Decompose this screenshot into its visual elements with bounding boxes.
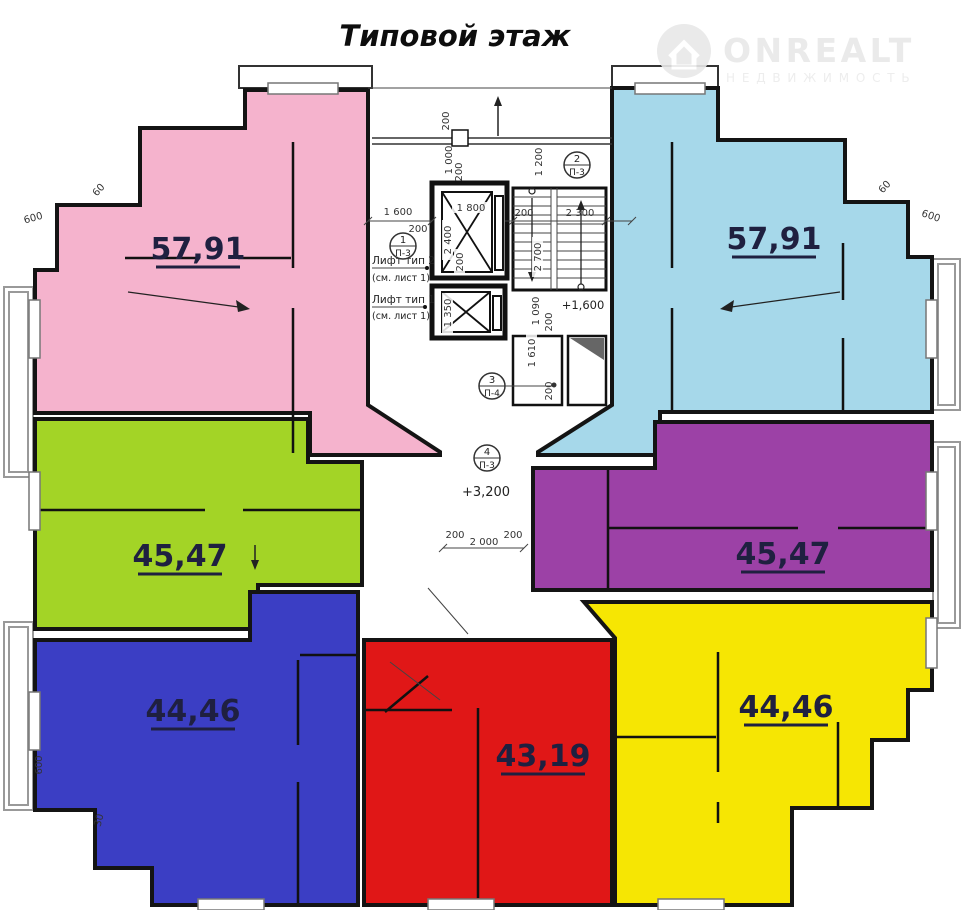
dim-label: 1 600 — [384, 207, 413, 218]
dim-label: 200 — [408, 224, 427, 235]
dim-label: 2 300 — [566, 208, 595, 219]
window-green-left — [29, 472, 40, 530]
area-label-blue: 57,91 — [727, 222, 822, 257]
window-pink-top — [268, 83, 338, 94]
lift2-note: (см. лист 1) — [372, 273, 430, 284]
marker-1: 1 П-3 — [390, 233, 416, 259]
balcony-right-mid-inner — [938, 447, 955, 623]
dim-label: 200 — [514, 208, 533, 219]
dim-label: 200 — [544, 312, 555, 331]
dim-label: 600 — [23, 211, 44, 227]
window-pink-left — [29, 300, 40, 358]
dim-label: 60 — [877, 179, 894, 196]
dim-label: 200 — [454, 162, 465, 181]
marker-3: 3 П-4 — [479, 373, 505, 399]
dim-label: 1 610 — [527, 339, 538, 368]
elevator2-counterweight — [495, 196, 503, 270]
area-label-red: 43,19 — [496, 739, 591, 774]
marker-code: П-4 — [484, 389, 500, 399]
floor-plan-page: 200 1 000 200 1 200 1 600 200 1 800 2 40… — [0, 0, 966, 910]
marker-2: 2 П-3 — [564, 152, 590, 178]
dim-label: 200 — [445, 530, 464, 541]
floor-plan-drawing: 200 1 000 200 1 200 1 600 200 1 800 2 40… — [0, 0, 966, 910]
window-darkblue-bottom — [198, 899, 264, 910]
dim-label: 600 — [920, 208, 942, 224]
dim-label: 2 400 — [443, 226, 454, 255]
dim-label: 60 — [91, 182, 108, 199]
balcony-right-upper-inner — [938, 264, 955, 405]
entry-porch-lines — [372, 138, 612, 144]
marker-number: 4 — [484, 447, 490, 458]
dim-label: 1 200 — [534, 148, 545, 177]
watermark-circle — [657, 24, 711, 78]
watermark-tagline: НЕДВИЖИМОСТЬ — [726, 71, 916, 85]
dim-label: 200 — [455, 252, 466, 271]
window-purple-right — [926, 472, 937, 530]
dim-label: 200 — [503, 530, 522, 541]
dim-label: 1 350 — [443, 299, 454, 328]
area-label-pink: 57,91 — [151, 232, 246, 267]
window-darkblue-left — [29, 692, 40, 750]
balcony-left-lower-inner — [9, 627, 28, 805]
marker-code: П-3 — [569, 168, 585, 178]
marker-3-dot — [552, 383, 557, 388]
dim-label: 2 700 — [533, 243, 544, 272]
area-label-purple: 45,47 — [736, 537, 831, 572]
marker-number: 3 — [489, 375, 495, 386]
dim-label: 1 800 — [457, 203, 486, 214]
lift1-label: Лифт тип 1 — [372, 294, 435, 306]
stairwell — [513, 188, 606, 290]
lift1-note: (см. лист 1) — [372, 311, 430, 322]
window-blue-right — [926, 300, 937, 358]
level-floor: +3,200 — [462, 485, 510, 500]
level-stairs: +1,600 — [562, 298, 605, 312]
window-yellow-right — [926, 618, 937, 668]
dim-label: 2 000 — [470, 537, 499, 548]
window-yellow-bottom — [658, 899, 724, 910]
apartment-darkblue-bottom-left — [35, 592, 358, 905]
area-label-darkblue: 44,46 — [146, 694, 241, 729]
dim-label: 1 090 — [531, 297, 542, 326]
balcony-left-upper-inner — [9, 292, 28, 472]
marker-code: П-3 — [395, 249, 411, 259]
elevator-labels: Лифт тип 2 (см. лист 1) Лифт тип 1 (см. … — [372, 255, 435, 322]
marker-4: 4 П-3 — [474, 445, 500, 471]
watermark-brand: ONREALT — [723, 31, 915, 70]
lift2-leader-dot — [425, 266, 429, 270]
window-red-bottom — [428, 899, 494, 910]
lift1-leader-dot — [423, 305, 427, 309]
entry-post — [452, 130, 468, 146]
area-label-green: 45,47 — [133, 539, 228, 574]
marker-number: 2 — [574, 154, 580, 165]
window-blue-top — [635, 83, 705, 94]
dim-label: 200 — [441, 111, 452, 130]
marker-code: П-3 — [479, 461, 495, 471]
page-title: Типовой этаж — [339, 19, 571, 53]
entry-arrow-head — [494, 96, 502, 106]
marker-number: 1 — [400, 235, 406, 246]
area-label-yellow: 44,46 — [739, 690, 834, 725]
elevator1-counterweight — [493, 296, 501, 330]
apartment-yellow-bottom-right — [584, 602, 932, 905]
dim-label: 600 — [34, 755, 45, 774]
